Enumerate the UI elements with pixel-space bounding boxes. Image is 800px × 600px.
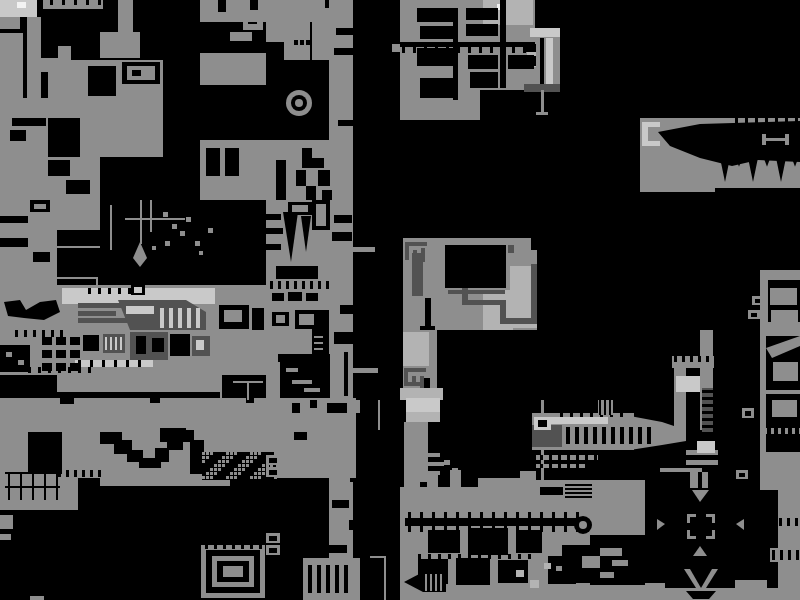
game-map-screen — [0, 0, 800, 600]
world-map-canvas — [0, 0, 800, 600]
